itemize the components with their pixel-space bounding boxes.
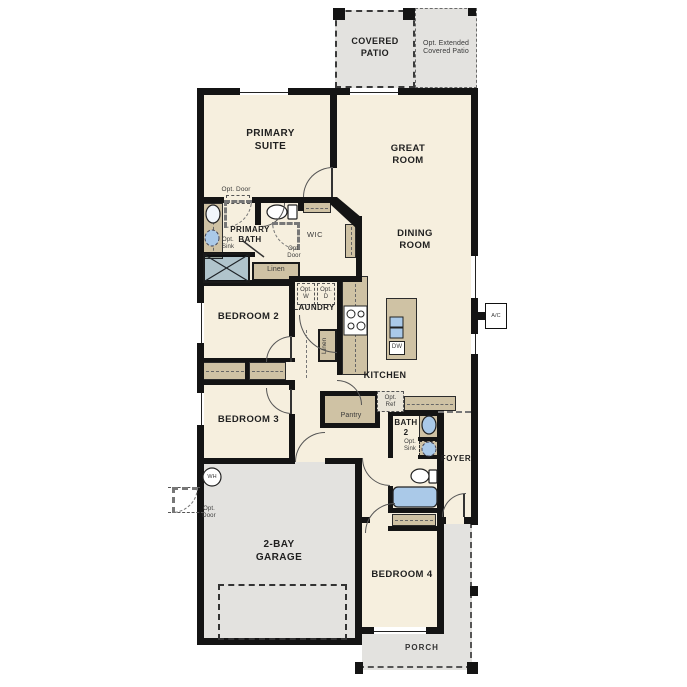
bath2-opt-sink-cabinet (419, 441, 438, 456)
wic-shelf (303, 202, 331, 213)
closet-divider (245, 362, 249, 380)
ac-label: A/C (491, 313, 500, 319)
pantry-label: Pantry (325, 412, 377, 420)
porch-post (467, 662, 478, 674)
door-leaf (463, 494, 465, 517)
hall-dashed-line (306, 330, 308, 378)
patio-post (468, 8, 476, 16)
porch-post (355, 662, 363, 674)
dishwasher-label: DW (389, 344, 405, 351)
wall-segment (289, 276, 362, 282)
bedroom4-label: BEDROOM 4 (357, 569, 447, 581)
wall-segment (437, 410, 444, 634)
opt-door-label-garage: Opt. Door (194, 506, 224, 520)
dining-room-label: DINING ROOM (380, 228, 450, 253)
patio-post (333, 8, 345, 20)
wall-segment (320, 391, 325, 428)
floor-plan: Opt. W Opt. D Opt. Ref A/C COVERED PATIO… (0, 0, 687, 687)
opt-dryer-label: Opt. D (320, 287, 332, 301)
wall-segment (418, 437, 438, 441)
opt-sink-label-b2: Opt. Sink (399, 439, 421, 453)
wall-segment (197, 88, 204, 645)
opt-washer-label: Opt. W (300, 287, 312, 301)
porch-label: PORCH (387, 643, 457, 653)
opt-door-label-wic: Opt. Door (278, 246, 310, 260)
window (197, 393, 204, 425)
patio-post (403, 8, 415, 20)
kitchen-counter (342, 276, 368, 375)
porch-post (470, 586, 478, 596)
wall-segment (330, 88, 337, 168)
wall-segment (388, 526, 442, 531)
garage-label: 2-BAY GARAGE (229, 538, 329, 564)
wall-segment (320, 423, 380, 428)
door-leaf (290, 337, 292, 362)
door-leaf (331, 168, 333, 197)
linen-label-hall: Linen (321, 333, 334, 359)
primary-suite-label: PRIMARY SUITE (228, 127, 313, 153)
wall-segment (355, 458, 362, 645)
opt-ref-box: Opt. Ref (377, 391, 404, 412)
bedroom2-label: BEDROOM 2 (206, 311, 291, 323)
garage-door-outline (218, 584, 347, 640)
front-door-opening (446, 517, 464, 524)
wall-segment (337, 276, 342, 375)
window (240, 88, 288, 95)
opt-sink-label-pb: Opt. Sink (210, 237, 246, 251)
wall-segment (197, 380, 295, 385)
wall-segment (418, 455, 438, 459)
extended-patio-label: Opt. Extended Covered Patio (416, 40, 476, 56)
bath2-label: BATH 2 (392, 418, 420, 437)
wic-shelf (345, 224, 356, 258)
door-leaf (290, 389, 292, 414)
opt-dryer-box: Opt. D (317, 283, 335, 305)
kitchen-label: KITCHEN (345, 370, 425, 382)
opt-door-label-suite: Opt. Door (216, 186, 256, 193)
opt-washer-box: Opt. W (297, 283, 315, 305)
bedroom3-label: BEDROOM 3 (206, 414, 291, 426)
wall-segment (197, 458, 295, 464)
bedroom3-closet (249, 362, 286, 380)
wic-label: WIC (299, 231, 331, 240)
bedroom2-closet (203, 362, 247, 380)
wall-segment (464, 517, 478, 524)
wall-segment (298, 197, 304, 211)
window (471, 256, 478, 298)
foyer-dashed-line (438, 411, 471, 414)
linen-label-bath: Linen (252, 266, 300, 274)
ac-unit: A/C (485, 303, 507, 329)
wall-segment (388, 508, 442, 513)
covered-patio-label: COVERED PATIO (337, 36, 413, 59)
wall-segment (356, 216, 362, 282)
window (471, 334, 478, 354)
bedroom4-closet (392, 514, 436, 526)
great-room-label: GREAT ROOM (373, 143, 443, 168)
laundry-label: LAUNDRY (289, 303, 339, 313)
ac-wall-tick (478, 312, 485, 320)
window (374, 627, 426, 634)
kitchen-counter-south (404, 396, 456, 411)
patio-door-window (350, 88, 398, 95)
foyer-label: FOYER (437, 454, 475, 464)
window (197, 303, 204, 343)
opt-ref-label: Opt. Ref (385, 395, 397, 409)
water-heater-label: WH (203, 474, 221, 480)
shower-fill (205, 255, 248, 281)
bath2-vanity (419, 413, 438, 438)
